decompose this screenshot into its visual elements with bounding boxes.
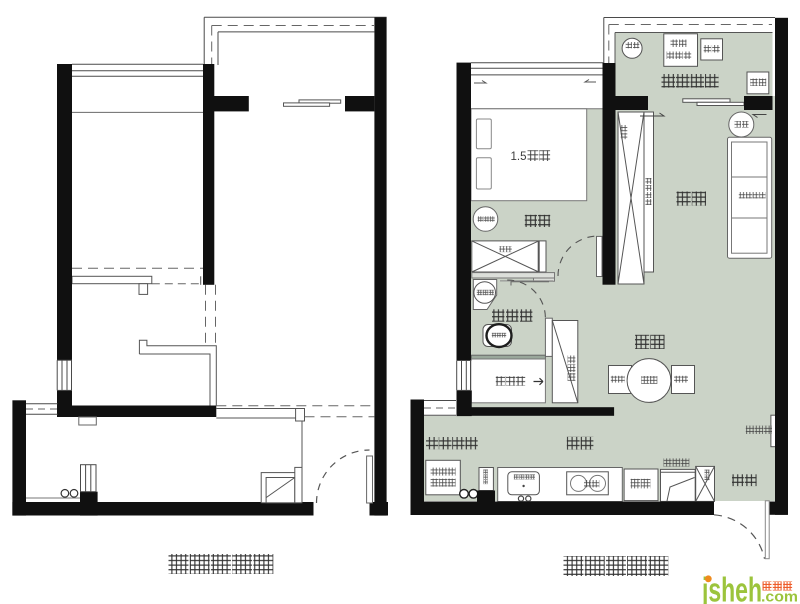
svg-text:1.5: 1.5 xyxy=(511,151,527,163)
svg-text:.com: .com xyxy=(761,589,798,604)
